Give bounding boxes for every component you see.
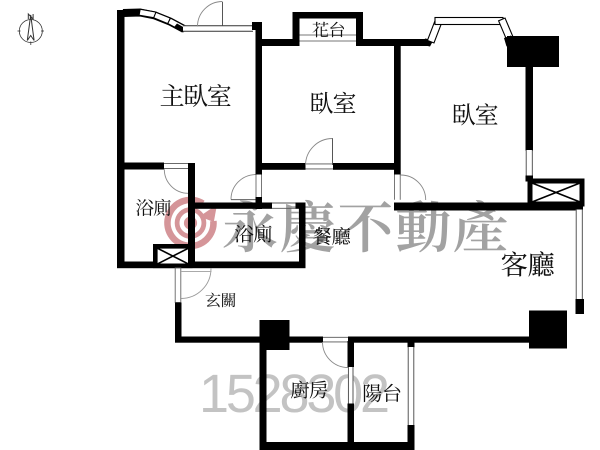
- svg-text:臥室: 臥室: [310, 84, 356, 119]
- svg-text:廚房: 廚房: [290, 375, 328, 403]
- svg-text:浴廁: 浴廁: [135, 195, 171, 221]
- svg-text:客廳: 客廳: [501, 243, 555, 283]
- svg-text:浴廁: 浴廁: [234, 219, 272, 247]
- svg-text:主臥室: 主臥室: [160, 77, 231, 113]
- svg-text:臥室: 臥室: [452, 96, 498, 131]
- svg-text:花台: 花台: [312, 16, 345, 41]
- svg-text:玄關: 玄關: [205, 288, 236, 311]
- svg-text:陽台: 陽台: [362, 378, 401, 407]
- svg-text:餐廳: 餐廳: [312, 222, 350, 250]
